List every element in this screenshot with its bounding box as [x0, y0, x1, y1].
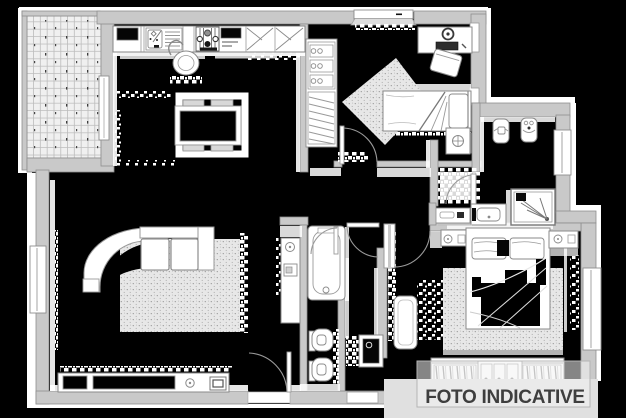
svg-text:FOTO INDICATIVE: FOTO INDICATIVE	[425, 387, 584, 408]
